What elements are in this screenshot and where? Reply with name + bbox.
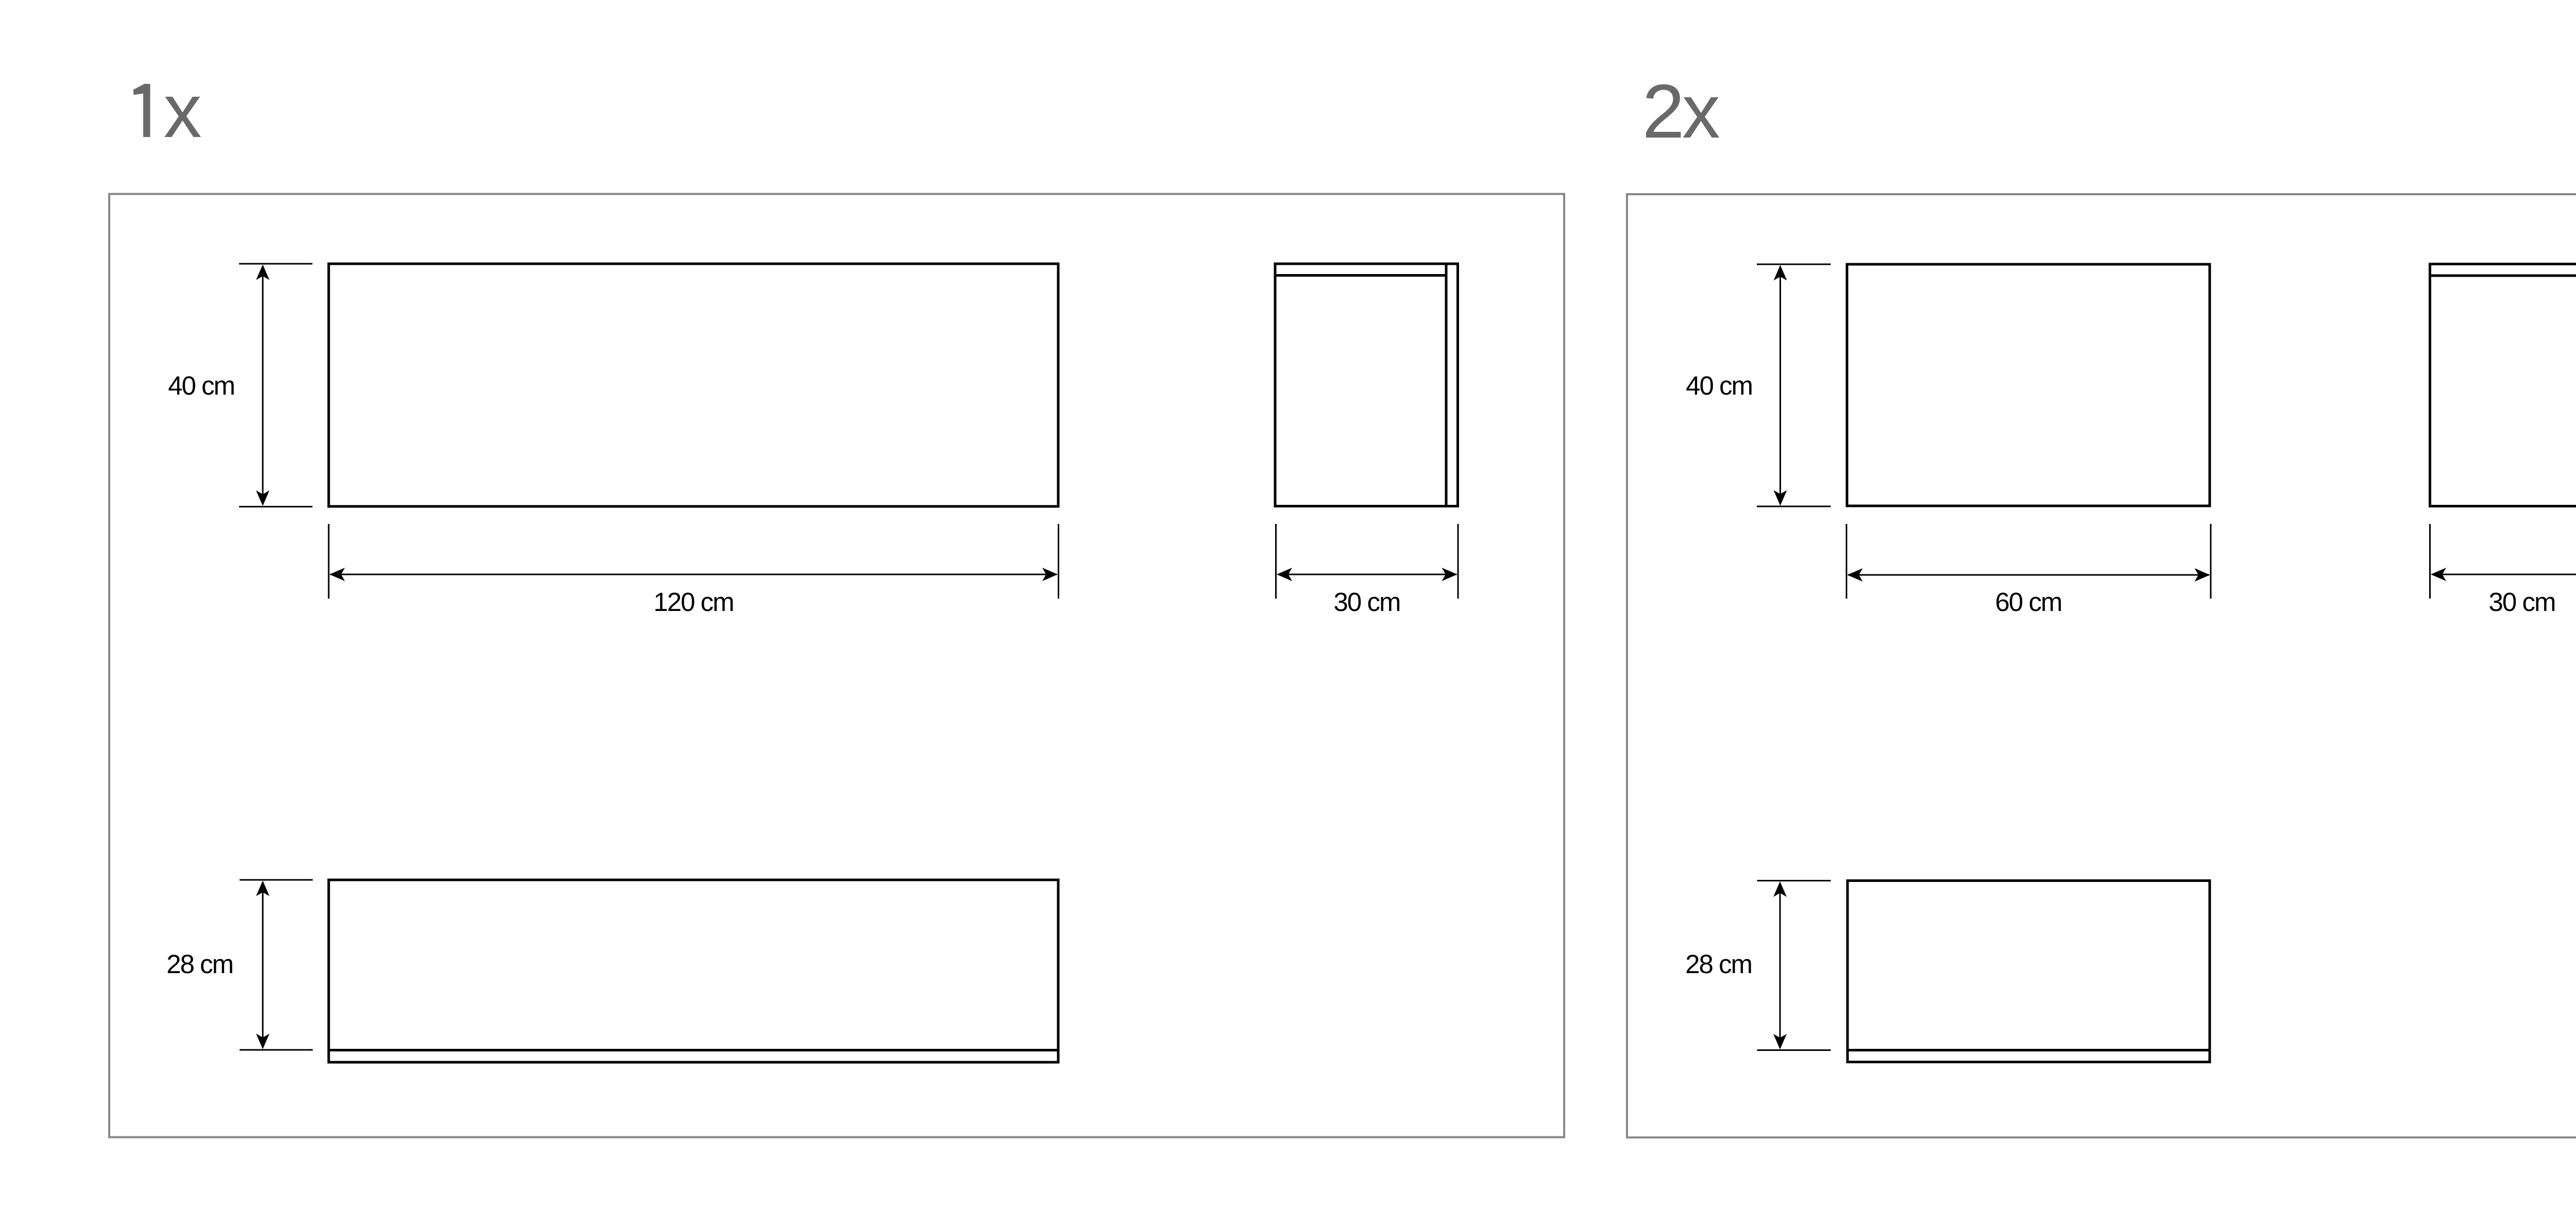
svg-text:x: x — [164, 69, 202, 154]
svg-text:30 cm: 30 cm — [2489, 587, 2555, 617]
svg-text:28 cm: 28 cm — [1685, 949, 1752, 979]
svg-text:120 cm: 120 cm — [653, 587, 733, 617]
svg-text:40 cm: 40 cm — [1686, 371, 1752, 400]
svg-text:60 cm: 60 cm — [1995, 587, 2062, 617]
svg-text:28 cm: 28 cm — [166, 949, 233, 979]
svg-text:2x: 2x — [1642, 69, 1720, 154]
svg-text:40 cm: 40 cm — [168, 371, 234, 400]
svg-text:30 cm: 30 cm — [1334, 587, 1400, 617]
